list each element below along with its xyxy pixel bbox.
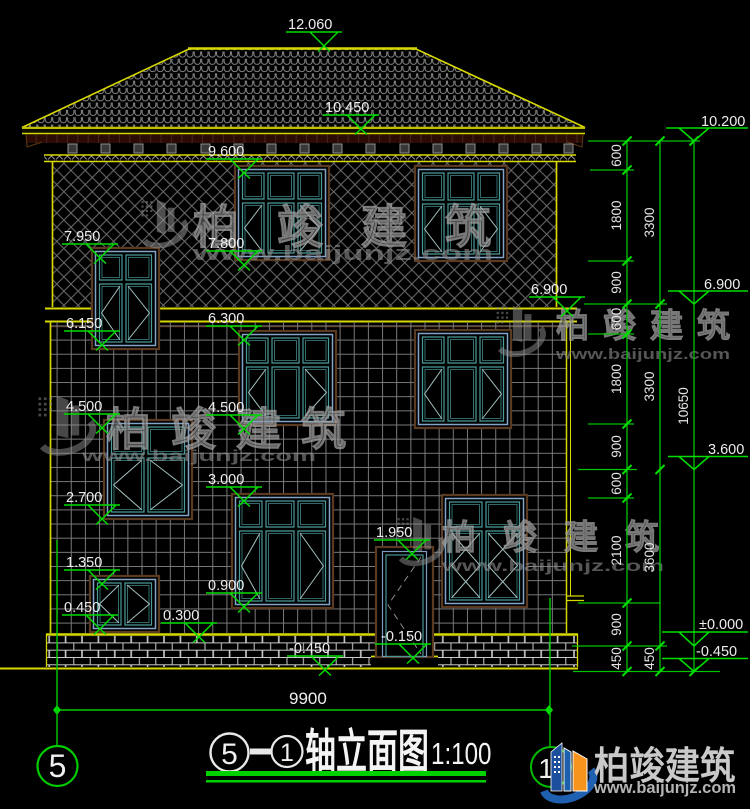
svg-text:9.600: 9.600 [208,144,244,160]
svg-text:3.000: 3.000 [208,472,244,488]
svg-text:1.350: 1.350 [66,555,102,571]
svg-text:0.900: 0.900 [208,578,244,594]
svg-text:2.700: 2.700 [66,490,102,506]
svg-text:-0.150: -0.150 [381,629,422,645]
svg-text:0.450: 0.450 [64,600,100,616]
svg-text:4.500: 4.500 [66,399,102,415]
svg-text:12.060: 12.060 [288,17,332,33]
svg-text:5: 5 [49,748,67,784]
svg-text:450: 450 [642,647,657,670]
svg-text:7.800: 7.800 [208,236,244,252]
svg-text:柏竣建筑: 柏竣建筑 [556,307,744,344]
svg-text:10.200: 10.200 [701,114,745,130]
svg-text:3300: 3300 [642,207,657,237]
svg-text:www.baijunjz.com: www.baijunjz.com [80,448,316,465]
svg-text:1: 1 [280,739,294,767]
svg-text:1:100: 1:100 [431,736,491,771]
svg-text:0.300: 0.300 [163,608,199,624]
svg-text:3600: 3600 [642,542,657,572]
svg-text:600: 600 [609,472,624,495]
svg-text:1800: 1800 [609,200,624,230]
svg-text:10.450: 10.450 [325,100,369,116]
svg-text:www.baijunjz.com: www.baijunjz.com [555,347,730,363]
svg-text:www.baijunjz.com: www.baijunjz.com [440,558,664,575]
svg-text:600: 600 [609,144,624,167]
svg-text:1800: 1800 [609,364,624,394]
svg-text:2100: 2100 [609,535,624,565]
svg-text:10650: 10650 [676,387,691,425]
svg-text:7.950: 7.950 [64,229,100,245]
svg-text:6.900: 6.900 [704,277,740,293]
svg-text:900: 900 [609,435,624,458]
svg-text:1.950: 1.950 [376,525,412,541]
svg-text:6.300: 6.300 [208,311,244,327]
svg-text:-0.450: -0.450 [289,641,330,657]
svg-text:6.900: 6.900 [531,282,567,298]
svg-text:±0.000: ±0.000 [699,617,743,633]
svg-text:5: 5 [221,738,238,771]
svg-text:6.150: 6.150 [66,316,102,332]
svg-text:900: 900 [609,271,624,294]
svg-text:3.600: 3.600 [708,442,744,458]
svg-text:600: 600 [609,308,624,331]
svg-text:www.baijunjz.com: www.baijunjz.com [593,779,736,797]
svg-text:3300: 3300 [642,371,657,401]
svg-text:450: 450 [609,647,624,670]
svg-text:轴立面图: 轴立面图 [305,727,429,779]
svg-text:900: 900 [609,613,624,636]
svg-text:9900: 9900 [289,689,327,708]
svg-text:4.500: 4.500 [208,400,244,416]
svg-text:-0.450: -0.450 [696,644,737,660]
